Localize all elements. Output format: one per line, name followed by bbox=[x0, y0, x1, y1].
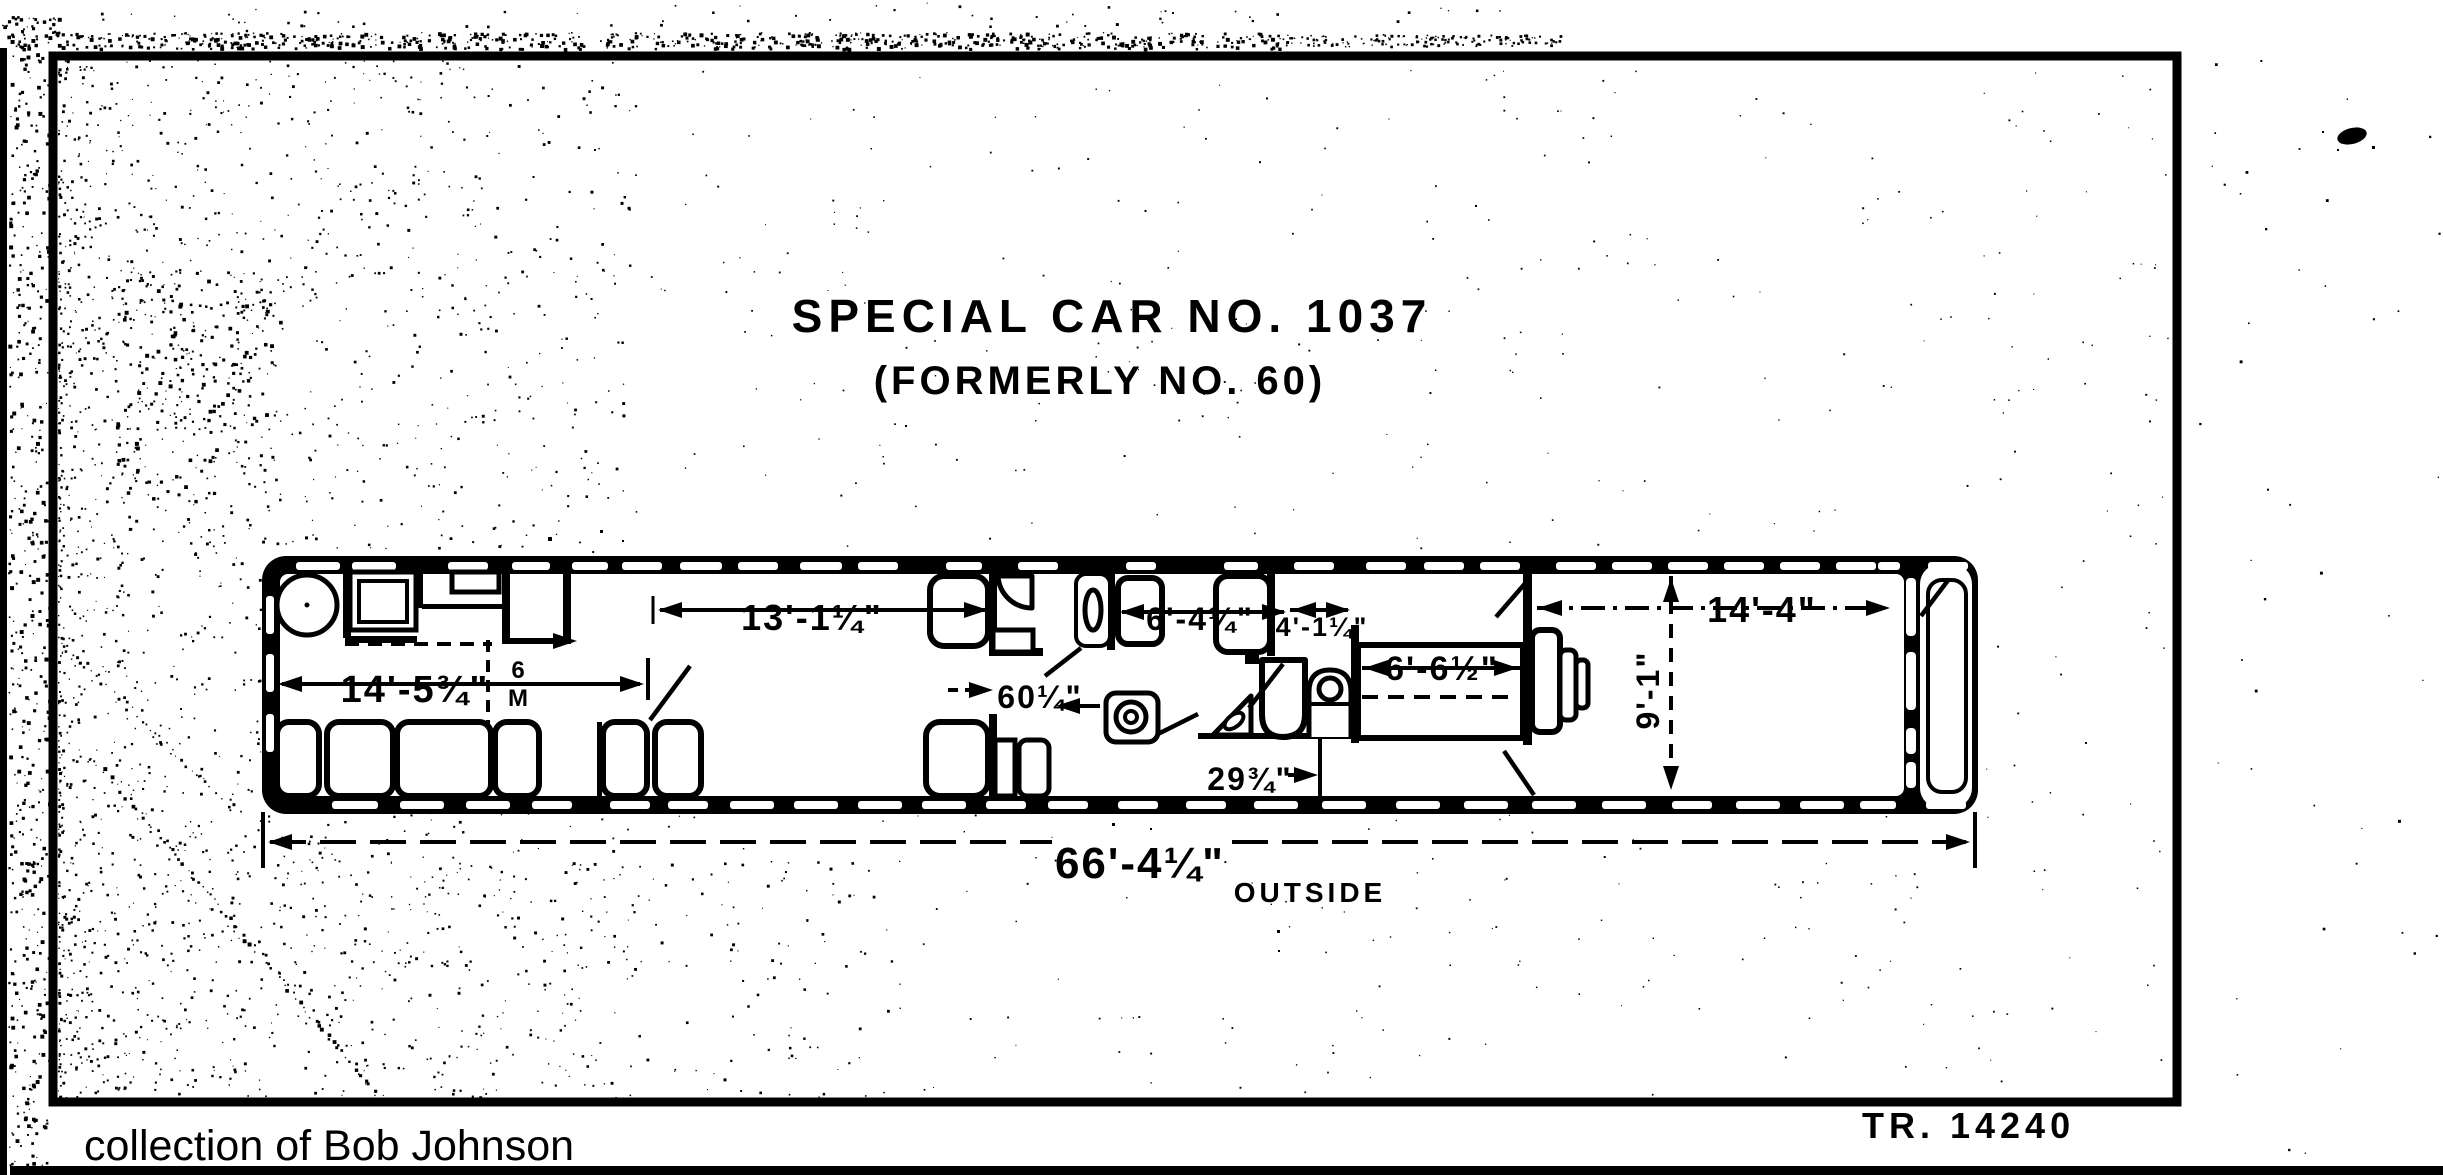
dim-lounge: 13'-1¼" bbox=[741, 597, 883, 638]
dim-bed-length: 6'-6½" bbox=[1385, 650, 1499, 688]
note-small-top: 6 bbox=[511, 657, 524, 684]
dim-bed-offset: 29¾" bbox=[1207, 761, 1292, 797]
title-text: SPECIAL CAR NO. 1037 bbox=[792, 290, 1433, 342]
drawing-number: TR. 14240 bbox=[1862, 1105, 2075, 1146]
dim-stateroom: 6'-4¼" bbox=[1146, 601, 1254, 637]
dim-overall-length: 66'-4¼" bbox=[1055, 839, 1225, 888]
dim-overall-suffix: OUTSIDE bbox=[1234, 877, 1386, 908]
credit-caption: collection of Bob Johnson bbox=[84, 1122, 574, 1170]
note-small-bottom: M bbox=[508, 685, 528, 712]
scan-page: SPECIAL CAR NO. 1037(FORMERLY NO. 60)TR.… bbox=[0, 0, 2443, 1175]
subtitle-text: (FORMERLY NO. 60) bbox=[874, 359, 1327, 403]
dim-car-width: 9'-1" bbox=[1630, 650, 1666, 729]
blueprint-drawing: SPECIAL CAR NO. 1037(FORMERLY NO. 60)TR.… bbox=[0, 0, 2443, 1175]
dim-toilet-room: 4'-1¼" bbox=[1276, 612, 1369, 642]
dim-dining-room: 14'-5¾" bbox=[341, 669, 490, 711]
dim-observation: 14'-4" bbox=[1707, 589, 1817, 630]
dim-passage: 60¼" bbox=[997, 679, 1082, 715]
